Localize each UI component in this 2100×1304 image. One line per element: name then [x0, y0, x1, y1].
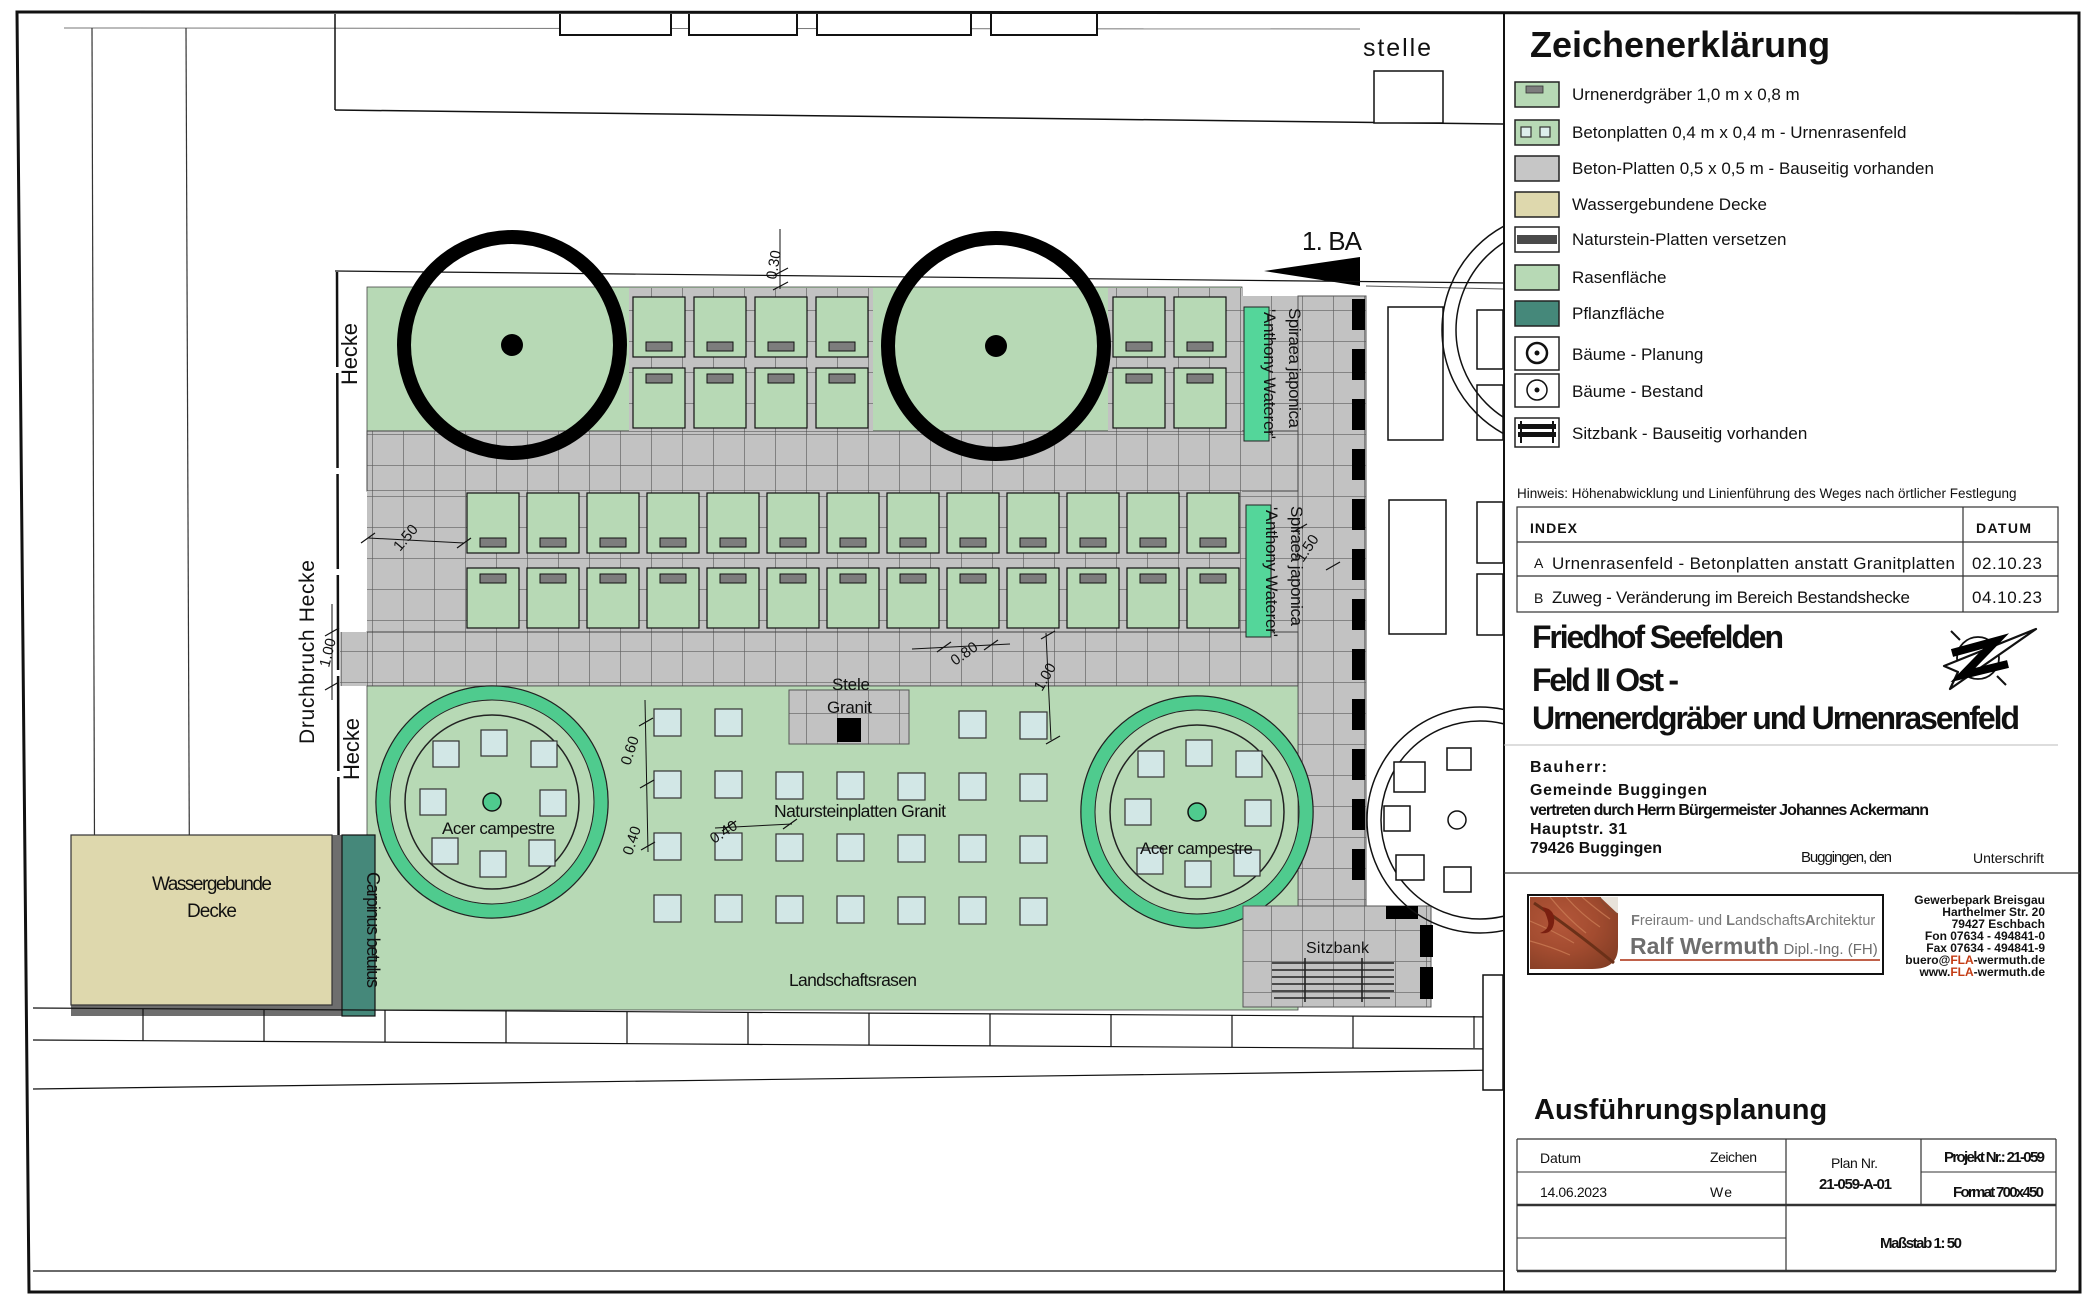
svg-text:Hecke: Hecke — [337, 323, 362, 385]
svg-text:vertreten durch Herrn Bürgerme: vertreten durch Herrn Bürgermeister Joha… — [1530, 802, 1929, 819]
svg-text:Plan Nr.: Plan Nr. — [1831, 1155, 1878, 1171]
svg-text:Granit: Granit — [827, 698, 872, 717]
svg-text:Carpinus betulus: Carpinus betulus — [363, 872, 383, 988]
svg-text:We: We — [1710, 1184, 1732, 1200]
svg-text:79426 Buggingen: 79426 Buggingen — [1530, 840, 1662, 857]
svg-text:Acer campestre: Acer campestre — [1140, 839, 1253, 858]
svg-text:stelle: stelle — [1363, 34, 1431, 62]
svg-text:Feld II Ost -: Feld II Ost - — [1532, 662, 1679, 698]
svg-text:'Anthony Waterer': 'Anthony Waterer' — [1260, 309, 1279, 439]
svg-text:Spiraea japonica: Spiraea japonica — [1285, 308, 1304, 429]
svg-text:Wassergebunde: Wassergebunde — [152, 874, 272, 895]
svg-text:21-059-A-01: 21-059-A-01 — [1819, 1176, 1892, 1193]
svg-text:Natursteinplatten Granit: Natursteinplatten Granit — [774, 801, 946, 821]
svg-text:Buggingen, den: Buggingen, den — [1801, 849, 1892, 866]
svg-text:Format 700x450: Format 700x450 — [1953, 1184, 2044, 1201]
svg-text:1. BA: 1. BA — [1302, 226, 1363, 256]
svg-text:04.10.23: 04.10.23 — [1972, 588, 2042, 607]
svg-text:Zuweg - Veränderung im Bereich: Zuweg - Veränderung im Bereich Bestandsh… — [1552, 588, 1910, 607]
svg-text:Projekt Nr.: 21-059: Projekt Nr.: 21-059 — [1944, 1149, 2045, 1166]
svg-text:02.10.23: 02.10.23 — [1972, 554, 2042, 573]
svg-text:Druchbruch Hecke: Druchbruch Hecke — [296, 560, 319, 744]
svg-text:Gemeinde Buggingen: Gemeinde Buggingen — [1530, 782, 1707, 799]
svg-text:Sitzbank: Sitzbank — [1306, 940, 1370, 957]
svg-text:Maßstab 1: 50: Maßstab 1: 50 — [1880, 1235, 1962, 1252]
svg-text:Stele: Stele — [832, 675, 870, 694]
svg-text:'Anthony Waterer': 'Anthony Waterer' — [1262, 507, 1281, 637]
svg-text:B: B — [1534, 590, 1543, 606]
svg-text:Bauherr:: Bauherr: — [1530, 759, 1607, 776]
svg-text:Friedhof Seefelden: Friedhof Seefelden — [1532, 619, 1784, 655]
svg-text:INDEX: INDEX — [1530, 520, 1578, 536]
svg-text:Hecke: Hecke — [339, 718, 364, 780]
svg-text:Hauptstr. 31: Hauptstr. 31 — [1530, 821, 1627, 838]
svg-text:Landschaftsrasen: Landschaftsrasen — [789, 970, 917, 990]
svg-text:Decke: Decke — [187, 901, 237, 922]
svg-text:Spiraea japonica: Spiraea japonica — [1287, 506, 1306, 627]
svg-text:Urnenerdgräber und Urnenrasenf: Urnenerdgräber und Urnenrasenfeld — [1532, 700, 2020, 736]
svg-text:DATUM: DATUM — [1976, 520, 2031, 536]
svg-text:Zeichen: Zeichen — [1710, 1149, 1757, 1165]
svg-text:1.00: 1.00 — [316, 637, 340, 669]
svg-text:A: A — [1534, 555, 1544, 571]
svg-text:Datum: Datum — [1540, 1150, 1581, 1166]
svg-text:14.06.2023: 14.06.2023 — [1540, 1184, 1607, 1200]
svg-text:Unterschrift: Unterschrift — [1973, 850, 2044, 866]
svg-text:Urnenrasenfeld - Betonplatten: Urnenrasenfeld - Betonplatten anstatt Gr… — [1552, 554, 1955, 573]
svg-text:Acer campestre: Acer campestre — [442, 819, 555, 838]
